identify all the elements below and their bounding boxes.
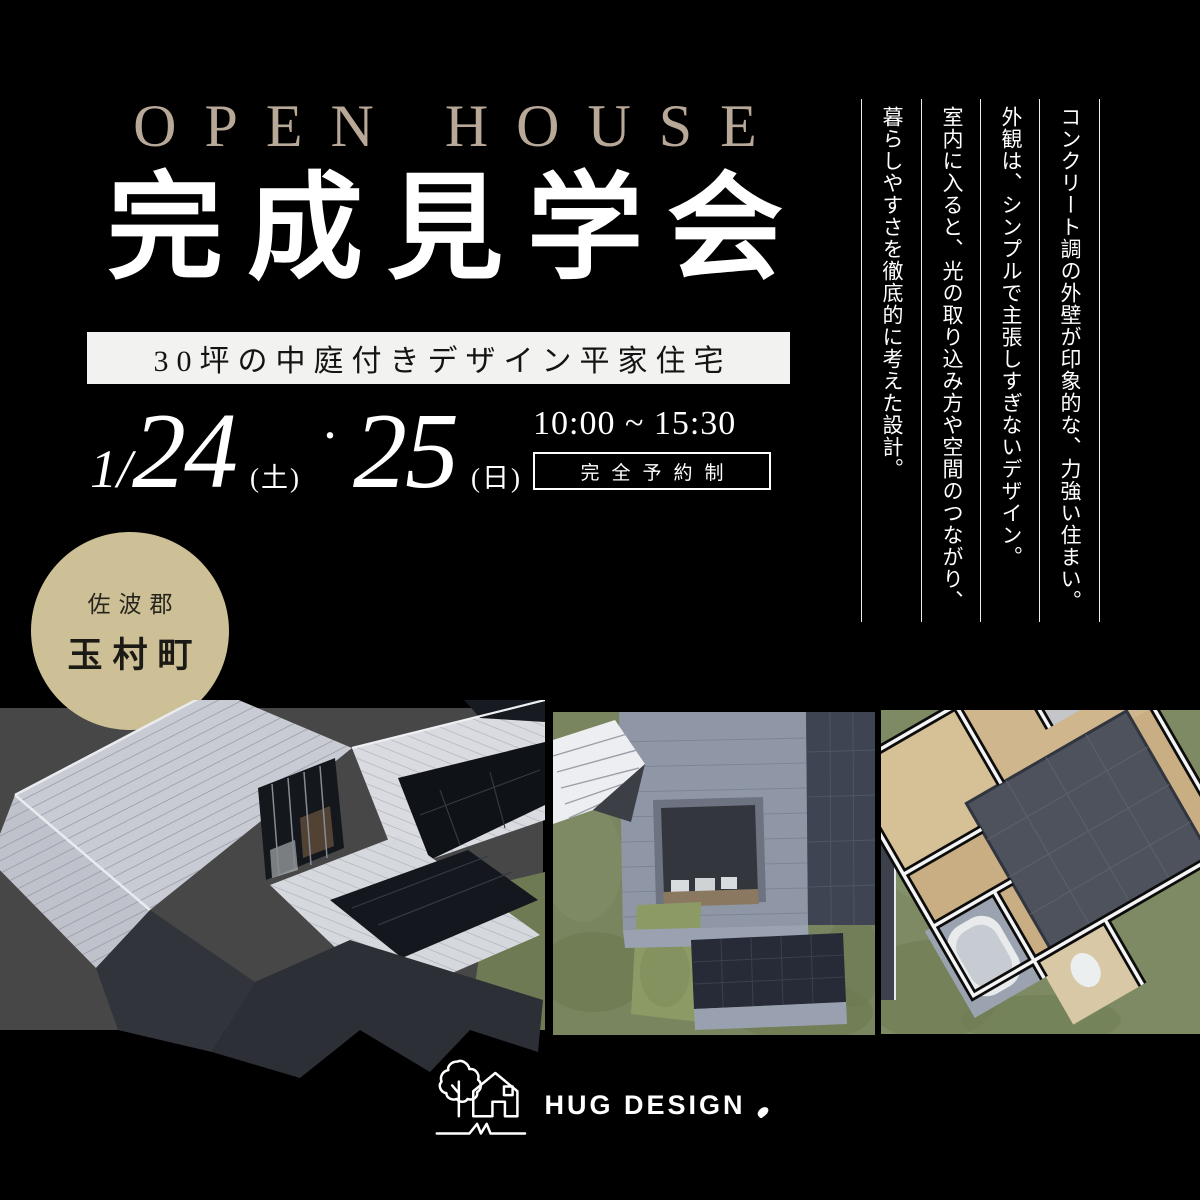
description-vertical-text: コンクリート調の外壁が印象的な、力強い住まい。 外観は、シンプルで主張しすぎない… <box>861 99 1100 622</box>
description-column-4: 暮らしやすさを徹底的に考えた設計。 <box>862 106 921 629</box>
page-title-english: OPEN HOUSE <box>95 92 795 161</box>
date-day-2-weekday: (日) <box>471 456 522 495</box>
reservation-box: 完全予約制 <box>533 452 771 490</box>
date-day-1: 24 <box>132 390 236 514</box>
brand-name: HUG DESIGN <box>544 1090 745 1121</box>
house-icon <box>474 1073 518 1116</box>
photo-exterior-aerial-render <box>0 700 545 1080</box>
photo-floorplan-render <box>881 710 1200 1034</box>
location-town: 玉村町 <box>57 627 202 678</box>
date-separator-dot: ・ <box>315 412 345 456</box>
description-column-3: 室内に入ると、光の取り込み方や空間のつながり、 <box>922 106 981 629</box>
subtitle-text: 30坪の中庭付きデザイン平家住宅 <box>146 336 732 380</box>
flyer-canvas: { "header": { "title_en": "OPEN HOUSE", … <box>0 0 1200 1200</box>
event-time: 10:00 ~ 15:30 <box>533 405 773 443</box>
photo-roof-topdown-render <box>553 712 875 1035</box>
description-column-2: 外観は、シンプルで主張しすぎないデザイン。 <box>981 106 1040 629</box>
event-dates: 1/ 24 (土) ・ 25 (日) <box>90 390 522 502</box>
event-time-block: 10:00 ~ 15:30 完全予約制 <box>533 405 773 490</box>
date-day-2: 25 <box>353 390 457 514</box>
date-day-1-weekday: (土) <box>250 456 301 495</box>
hug-design-logo-icon <box>431 1052 527 1142</box>
hug-design-logo: HUG DESIGN <box>0 1052 1200 1142</box>
subtitle-band: 30坪の中庭付きデザイン平家住宅 <box>87 332 790 384</box>
reservation-label: 完全予約制 <box>568 458 735 485</box>
column-divider <box>1099 99 1100 622</box>
leaf-dot-icon <box>755 1105 769 1119</box>
location-district: 佐波郡 <box>80 585 181 619</box>
zigzag-underline <box>437 1124 525 1134</box>
description-column-1: コンクリート調の外壁が印象的な、力強い住まい。 <box>1040 106 1099 629</box>
page-title-japanese: 完成見学会 <box>80 170 810 292</box>
date-month: 1/ <box>90 438 132 500</box>
